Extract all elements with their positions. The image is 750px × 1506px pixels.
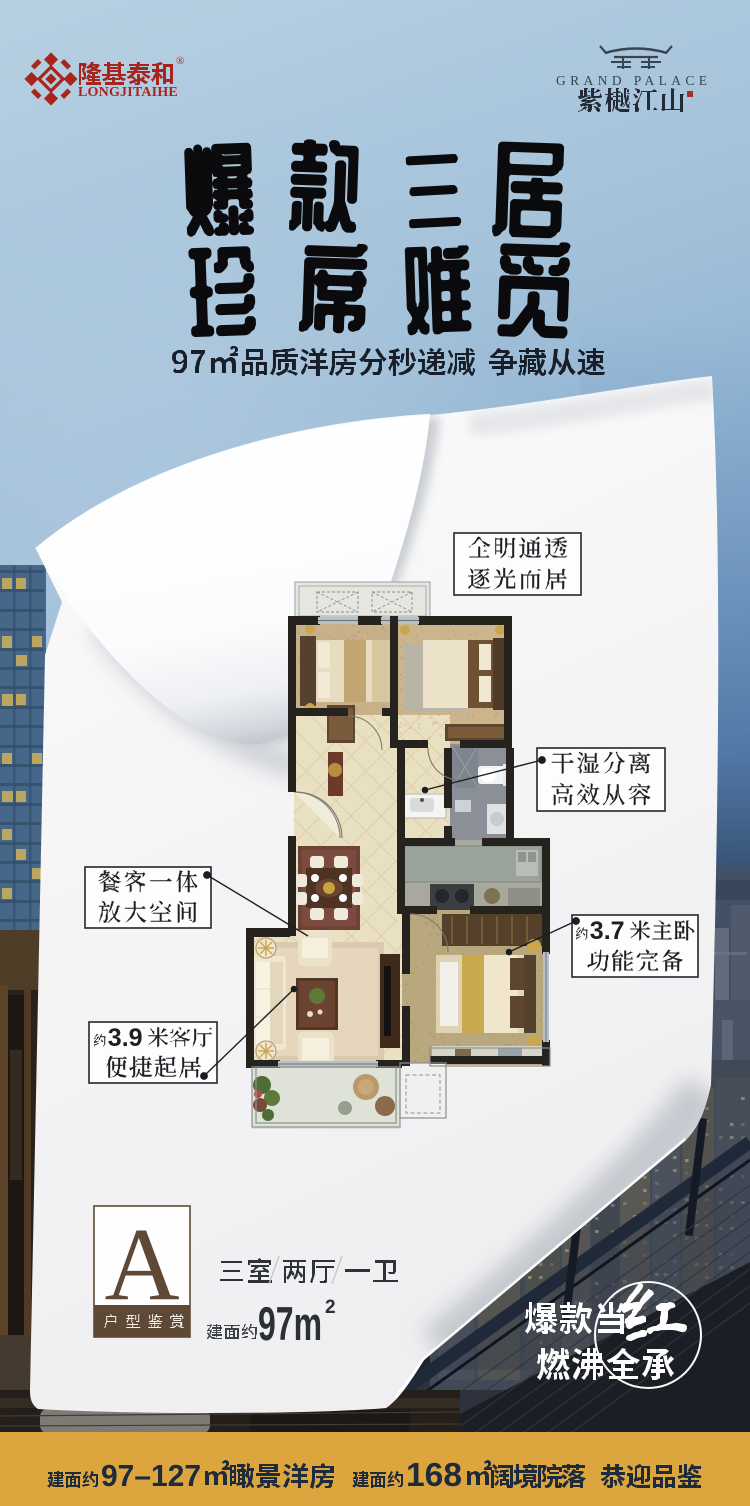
svg-text:2: 2 — [325, 1297, 336, 1318]
svg-text:97–127: 97–127 — [101, 1458, 201, 1493]
svg-text:A: A — [104, 1207, 179, 1322]
svg-text:®: ® — [176, 55, 184, 67]
svg-text:GRAND PALACE: GRAND PALACE — [556, 73, 711, 88]
svg-text:3.7: 3.7 — [590, 917, 625, 945]
svg-text:97m: 97m — [258, 1297, 322, 1350]
svg-text:LONGJITAIHE: LONGJITAIHE — [78, 85, 178, 100]
svg-text:3.9: 3.9 — [108, 1024, 143, 1052]
svg-text:168: 168 — [406, 1456, 462, 1493]
